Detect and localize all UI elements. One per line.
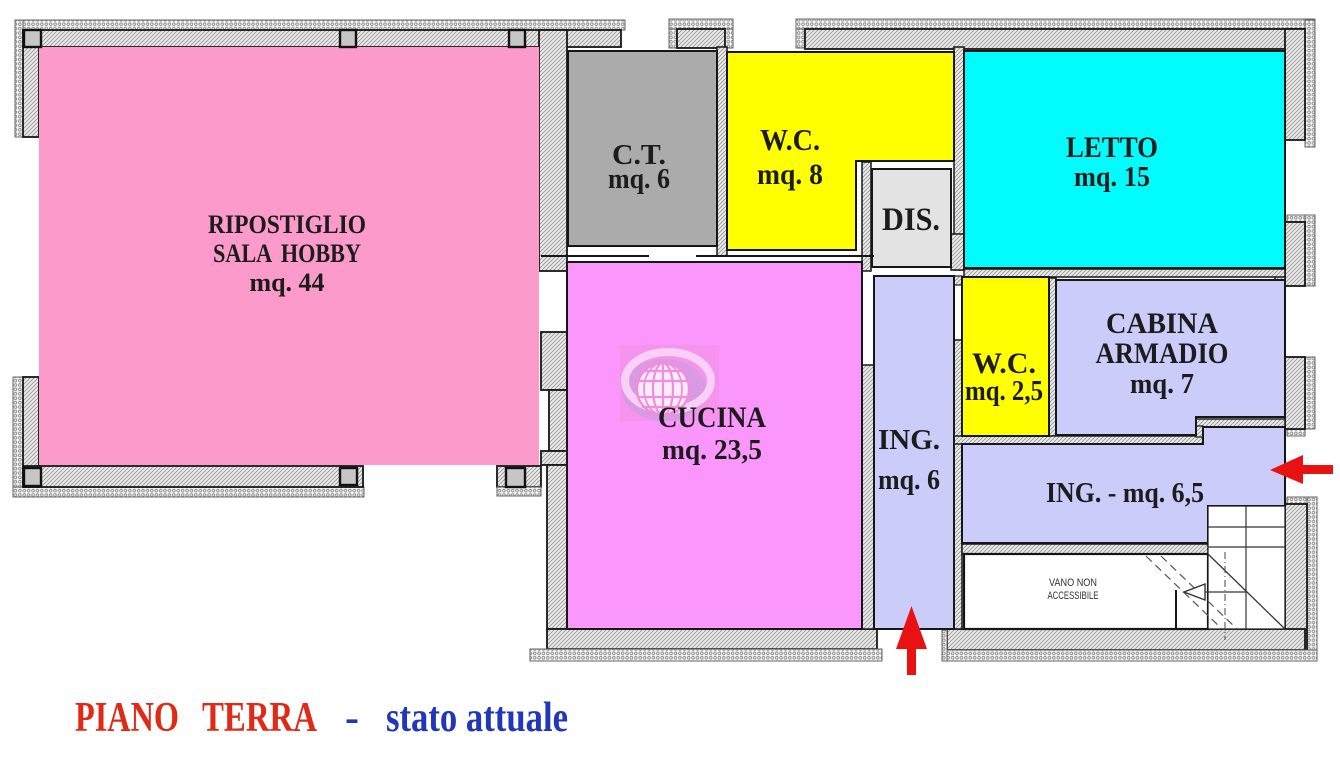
svg-text:PIANO: PIANO [75,695,179,741]
svg-text:mq. 2,5: mq. 2,5 [965,376,1043,407]
svg-text:mq. 6: mq. 6 [878,464,940,496]
svg-text:RIPOSTIGLIO: RIPOSTIGLIO [208,210,366,239]
svg-text:stato attuale: stato attuale [386,695,568,741]
svg-text:mq. 8: mq. 8 [757,158,823,191]
svg-text:CUCINA: CUCINA [658,401,766,434]
svg-text:DIS.: DIS. [882,202,940,238]
svg-text:CABINA: CABINA [1106,307,1218,340]
svg-text:VANO NON: VANO NON [1049,577,1097,589]
svg-text:LETTO: LETTO [1066,131,1158,164]
svg-text:-: - [345,695,359,741]
svg-text:ARMADIO: ARMADIO [1096,337,1229,370]
svg-text:mq. 7: mq. 7 [1130,368,1194,400]
svg-text:ING. - mq. 6,5: ING. - mq. 6,5 [1046,477,1204,509]
svg-text:ACCESSIBILE: ACCESSIBILE [1048,590,1099,602]
svg-text:W.C.: W.C. [760,122,820,157]
svg-text:mq. 15: mq. 15 [1074,161,1150,193]
svg-text:TERRA: TERRA [202,695,318,741]
svg-text:ING.: ING. [878,424,940,456]
svg-text:SALA HOBBY: SALA HOBBY [213,239,361,268]
svg-text:mq. 6: mq. 6 [608,164,670,195]
svg-text:mq. 23,5: mq. 23,5 [662,434,762,466]
svg-text:mq. 44: mq. 44 [249,268,324,297]
